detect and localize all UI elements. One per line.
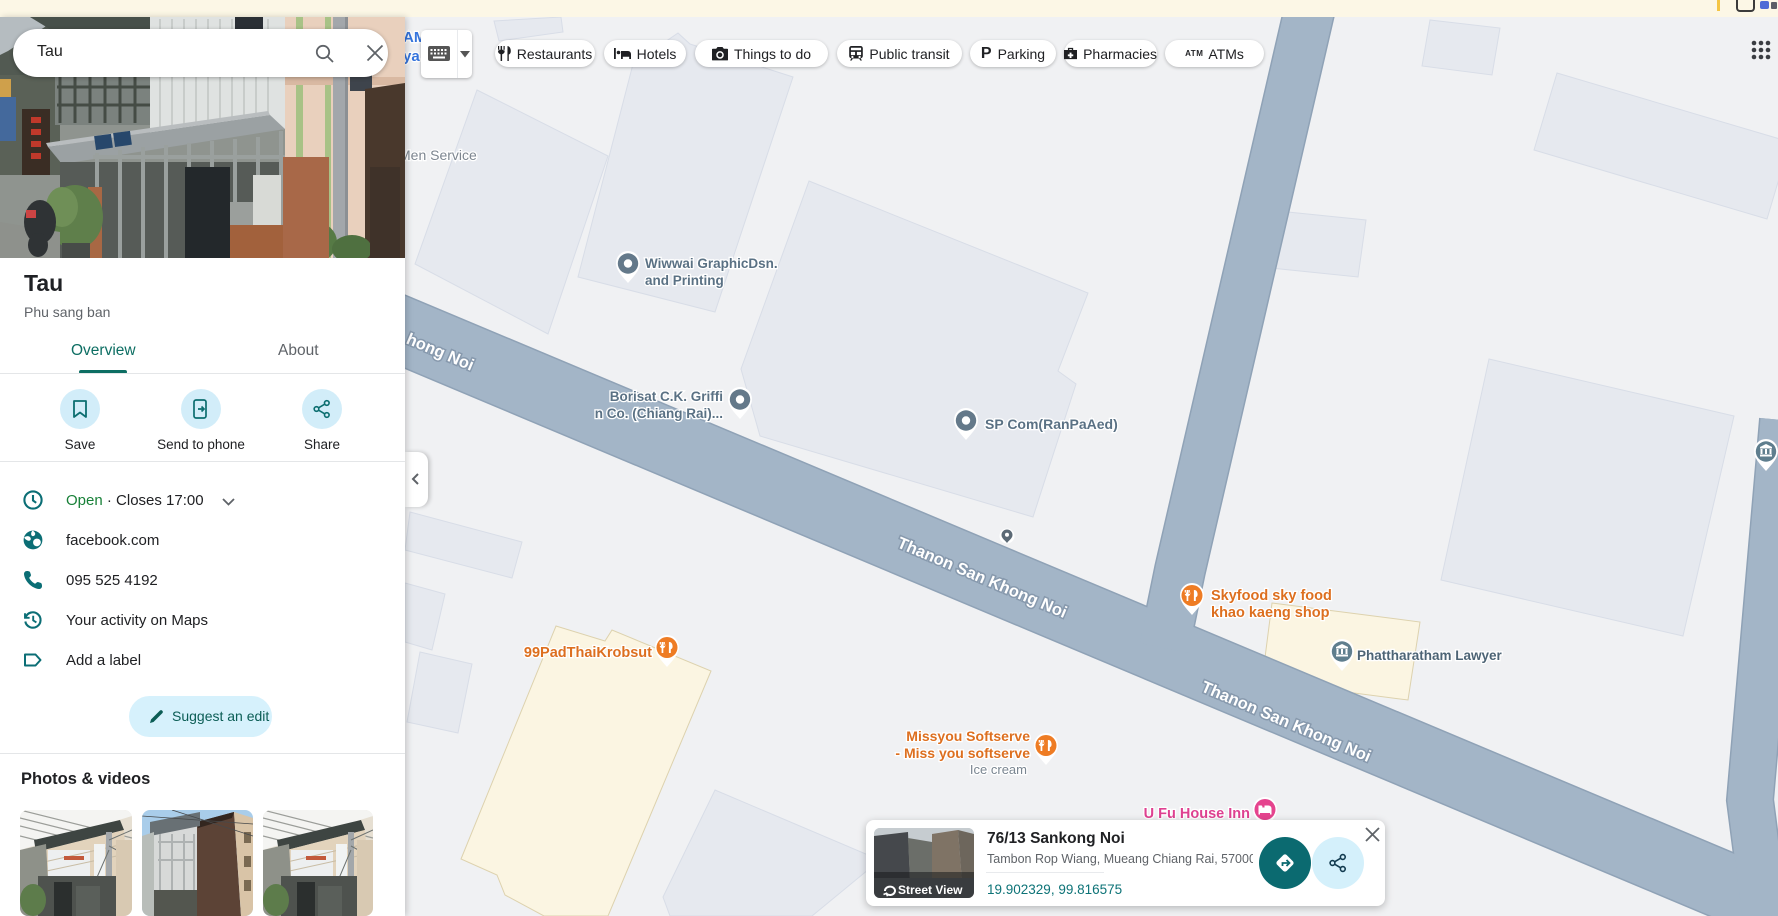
svg-text:ya: ya bbox=[403, 48, 420, 65]
svg-text:Men Service: Men Service bbox=[399, 147, 477, 163]
svg-text:Skyfood sky food: Skyfood sky food bbox=[1211, 588, 1332, 604]
svg-text:n Co. (Chiang Rai)...: n Co. (Chiang Rai)... bbox=[595, 406, 723, 421]
svg-text:Borisat C.K. Griffi: Borisat C.K. Griffi bbox=[610, 389, 723, 404]
svg-text:Wiwwai GraphicDsn.: Wiwwai GraphicDsn. bbox=[645, 256, 778, 271]
svg-text:99PadThaiKrobsut: 99PadThaiKrobsut bbox=[524, 645, 652, 661]
svg-text:Street View: Street View bbox=[898, 883, 963, 897]
svg-text:Ice cream: Ice cream bbox=[970, 762, 1027, 777]
svg-text:khao kaeng shop: khao kaeng shop bbox=[1211, 605, 1330, 621]
svg-text:Phattharatham Lawyer: Phattharatham Lawyer bbox=[1357, 648, 1503, 663]
svg-text:- Miss you softserve: - Miss you softserve bbox=[895, 745, 1030, 761]
svg-text:SP Com(RanPaAed): SP Com(RanPaAed) bbox=[985, 416, 1118, 432]
svg-text:Missyou Softserve: Missyou Softserve bbox=[906, 728, 1030, 744]
svg-text:and Printing: and Printing bbox=[645, 273, 724, 288]
